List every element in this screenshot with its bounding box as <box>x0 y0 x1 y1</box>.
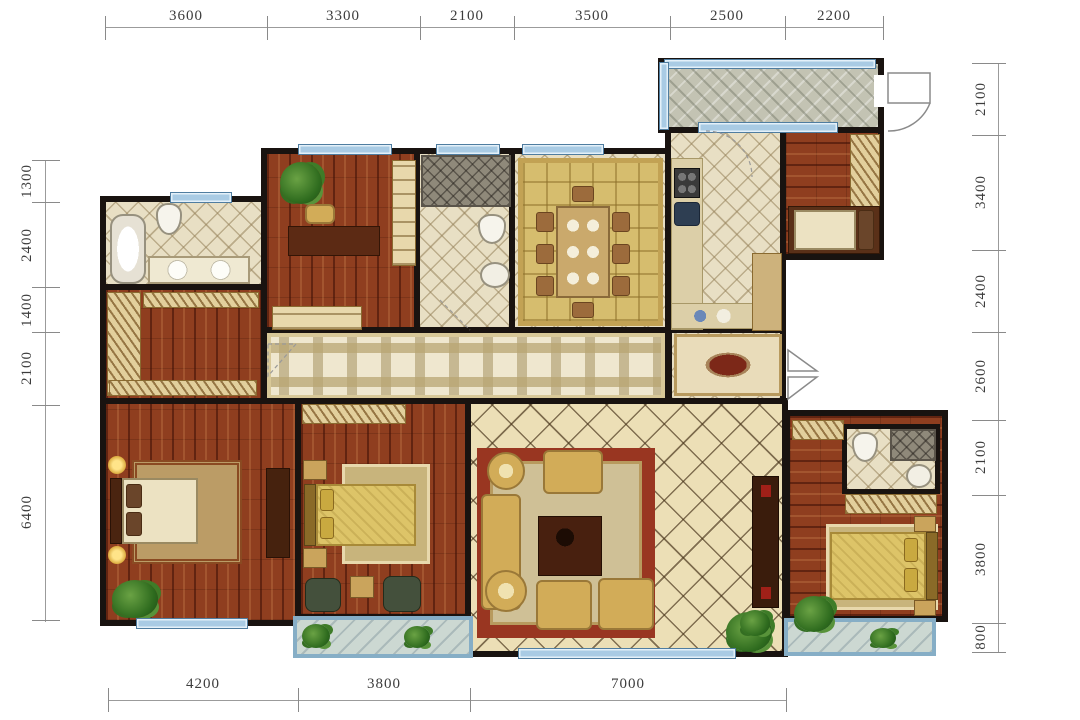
double-sink-vanity <box>148 256 250 284</box>
window <box>518 648 736 659</box>
pillow <box>320 489 334 511</box>
armchair <box>536 580 592 630</box>
desk-chair <box>305 204 335 224</box>
window <box>664 59 876 69</box>
plant <box>870 628 896 648</box>
dim-label-right-4: 2100 <box>973 422 991 492</box>
desk <box>288 226 380 256</box>
dining-chair <box>536 212 554 232</box>
foyer-rug <box>674 334 782 396</box>
dim-tick <box>420 16 421 40</box>
dining-chair <box>536 244 554 264</box>
dim-label-top-2: 2100 <box>427 8 507 25</box>
dim-line-bottom <box>108 700 786 701</box>
dining-chair <box>612 212 630 232</box>
dim-tick <box>298 688 299 712</box>
nightstand <box>303 460 327 480</box>
dim-label-right-3: 2600 <box>973 341 991 411</box>
bedside-lamp <box>108 546 126 564</box>
dim-tick <box>32 405 60 406</box>
sink <box>480 262 510 288</box>
window <box>170 192 232 203</box>
bedside-lamp <box>108 456 126 474</box>
dim-label-left-4: 6400 <box>19 477 37 547</box>
dim-line-top <box>105 27 883 28</box>
headboard <box>304 484 316 546</box>
dim-tick <box>105 16 106 40</box>
clothes-rail <box>109 380 257 396</box>
dining-chair <box>536 276 554 296</box>
dim-label-top-5: 2200 <box>794 8 874 25</box>
tv-cabinet <box>752 476 779 608</box>
kitchen-sink <box>674 202 700 226</box>
dim-label-left-1: 2400 <box>19 210 37 280</box>
shower-area <box>890 429 936 461</box>
armchair <box>598 578 654 630</box>
clothes-rail <box>792 420 844 440</box>
dim-tick <box>514 16 515 40</box>
coffee-table <box>538 516 602 576</box>
dim-tick <box>670 16 671 40</box>
dim-label-bottom-1: 3800 <box>344 676 424 693</box>
plant <box>112 580 158 618</box>
bed <box>794 210 856 250</box>
headboard <box>926 532 938 600</box>
dim-label-right-0: 2100 <box>973 64 991 134</box>
plant <box>404 626 430 648</box>
plant <box>794 596 834 632</box>
window <box>136 618 248 629</box>
tv-cabinet <box>266 468 290 558</box>
dim-tick <box>972 250 1006 251</box>
low-cabinet <box>272 306 362 330</box>
kitchen-cabinet <box>752 253 782 331</box>
plant <box>740 610 770 636</box>
door-opening <box>874 75 888 107</box>
bookshelf <box>392 160 416 266</box>
dim-tick <box>32 620 60 621</box>
pillow <box>126 484 142 508</box>
pillow <box>126 512 142 536</box>
wardrobe <box>302 404 406 424</box>
wardrobe <box>845 494 937 514</box>
dim-tick <box>972 495 1006 496</box>
room-hallway <box>261 327 671 405</box>
cooktop <box>674 168 700 198</box>
dim-tick <box>785 16 786 40</box>
dim-tick <box>108 688 109 712</box>
dim-tick <box>267 16 268 40</box>
dim-tick <box>883 16 884 40</box>
dim-label-right-5: 3800 <box>973 524 991 594</box>
dining-table <box>556 206 610 298</box>
dim-label-top-4: 2500 <box>687 8 767 25</box>
dim-label-left-0: 1300 <box>19 146 37 216</box>
dim-label-bottom-0: 4200 <box>163 676 243 693</box>
nightstand <box>303 548 327 568</box>
dim-label-top-3: 3500 <box>552 8 632 25</box>
pillow <box>320 517 334 539</box>
dining-chair <box>612 276 630 296</box>
sink <box>906 464 932 488</box>
lounge-chair <box>383 576 421 612</box>
plant <box>280 162 322 204</box>
dim-tick <box>972 332 1006 333</box>
dim-label-right-1: 3400 <box>973 157 991 227</box>
pillow <box>904 538 918 562</box>
plant <box>302 624 330 648</box>
side-table <box>487 452 525 490</box>
dim-line-right <box>998 63 999 653</box>
dim-line-left <box>45 160 46 622</box>
small-table <box>350 576 374 598</box>
dim-tick <box>470 688 471 712</box>
dining-chair <box>572 186 594 202</box>
dim-tick <box>972 135 1006 136</box>
shower-area <box>421 155 511 207</box>
lounge-chair <box>305 578 341 612</box>
pillow <box>904 568 918 592</box>
dim-label-right-6: 800 <box>973 602 991 672</box>
dim-tick <box>972 420 1006 421</box>
window <box>298 144 392 155</box>
nightstand <box>914 600 936 616</box>
bathtub <box>110 214 146 284</box>
pillow <box>858 210 874 250</box>
dim-label-right-2: 2400 <box>973 256 991 326</box>
window <box>659 62 669 130</box>
dim-tick <box>786 688 787 712</box>
floor-plan-canvas: 3600 3300 2100 3500 2500 2200 4200 3800 … <box>0 0 1080 720</box>
dining-chair <box>612 244 630 264</box>
dim-label-top-0: 3600 <box>146 8 226 25</box>
side-table <box>485 570 527 612</box>
window <box>436 144 500 155</box>
dim-label-bottom-2: 7000 <box>588 676 668 693</box>
clothes-rail <box>143 292 259 308</box>
armchair <box>543 450 603 494</box>
dining-chair <box>572 302 594 318</box>
window <box>522 144 604 155</box>
dim-label-left-3: 2100 <box>19 333 37 403</box>
dim-label-top-1: 3300 <box>303 8 383 25</box>
window <box>698 122 838 133</box>
headboard <box>110 478 122 544</box>
nightstand <box>914 516 936 532</box>
